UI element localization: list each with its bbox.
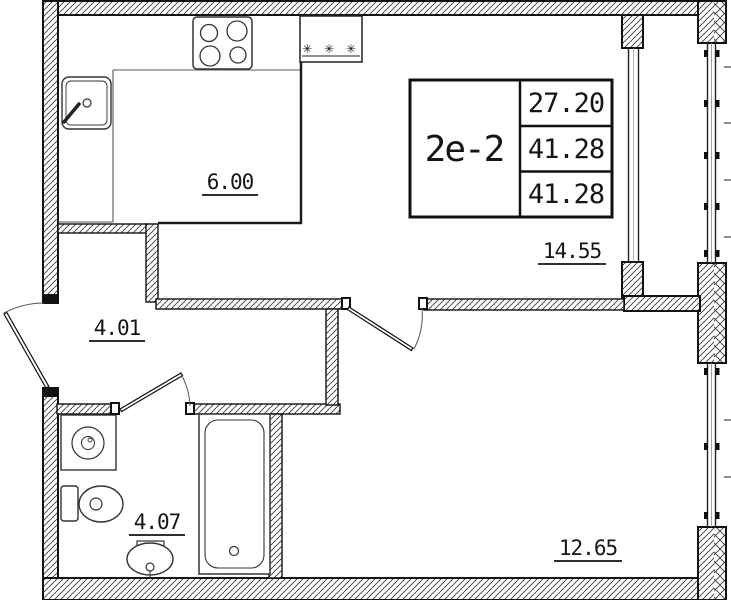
facade-piers [698,1,726,600]
kitchen-side-wall [146,224,158,302]
room-label-kitchen: 6.00 [202,170,258,195]
room-label-hallway: 4.01 [89,316,145,341]
washing-machine-icon [61,415,116,470]
door-jamb [419,298,427,309]
bath-east-wall [269,414,282,578]
entry-jamb-top [42,294,58,303]
stove-burner [201,25,218,42]
stove-burner [227,21,247,41]
room-label-living: 14.55 [538,239,606,264]
vent-stars: ✳ ✳ ✳ [302,42,360,56]
living-area-value: 27.20 [528,88,604,119]
living-area-text: 14.55 [543,239,601,263]
window-wall-pier-bottom [622,262,643,298]
wall-left-lower [43,388,58,600]
bedroom-west-wall [326,309,338,405]
bathroom-door [111,373,194,414]
bath-north-wall-west [57,404,113,414]
window-living-balcony [704,43,720,263]
window-wall-pier-top [622,15,643,48]
window-bedroom [704,363,720,527]
sink-drain [83,99,91,107]
kitchen-boundary-line [158,62,301,223]
wall-top [43,1,700,15]
bathroom-door-leaf [120,373,183,412]
pier-bottom-right [698,527,726,600]
wall-bottom [43,578,702,600]
vent-shaft: ✳ ✳ ✳ [300,16,362,62]
kitchen-area-text: 6.00 [207,170,254,194]
entry-door-leaf [4,312,49,388]
total-area-value: 41.28 [528,179,604,210]
room-area-labels: 6.00 14.55 4.01 4.07 12.65 [89,170,622,561]
hallway-area-text: 4.01 [94,316,141,340]
balcony-window-wall [622,15,700,311]
entry-jamb-bottom [42,388,58,397]
sink-icon [62,77,111,129]
stove-burner [230,47,246,63]
bedroom-door-leaf [347,307,413,351]
bathtub-icon [199,414,270,574]
room-label-bathroom: 4.07 [129,510,185,535]
unit-type-label: 2e-2 [425,129,504,170]
unit-info-table: 2e-2 27.20 41.28 41.28 [410,80,612,217]
bedroom-door-swing [414,308,422,349]
bathroom-area-text: 4.07 [134,510,181,534]
stove-burner [200,46,220,66]
balcony-divider-wall [624,296,700,311]
bedroom-area-text: 12.65 [559,536,617,560]
door-jamb [111,403,119,414]
bedroom-door [342,298,427,351]
bath-north-wall-east [194,404,340,414]
toilet-icon [61,486,123,522]
washbasin-icon [127,541,173,577]
entry-door-swing [4,303,44,313]
hall-north-wall [156,299,346,309]
bathroom-fixtures [61,414,270,577]
bathroom-door-swing [181,374,190,406]
room-label-bedroom: 12.65 [554,536,622,561]
wall-left-upper [43,1,58,303]
living-south-wall [424,299,624,310]
floor-plan-drawing: ✳ ✳ ✳ [0,0,731,600]
pier-middle-right [698,263,726,363]
doors [4,294,427,414]
kitchen-south-wall [58,224,147,233]
entry-door [4,294,58,397]
pier-top-right [698,1,726,43]
apartment-area-value: 41.28 [528,134,604,165]
stove-icon [193,17,252,69]
bathtub-drain [230,547,239,556]
floor-plan-page: ✳ ✳ ✳ [0,0,731,600]
